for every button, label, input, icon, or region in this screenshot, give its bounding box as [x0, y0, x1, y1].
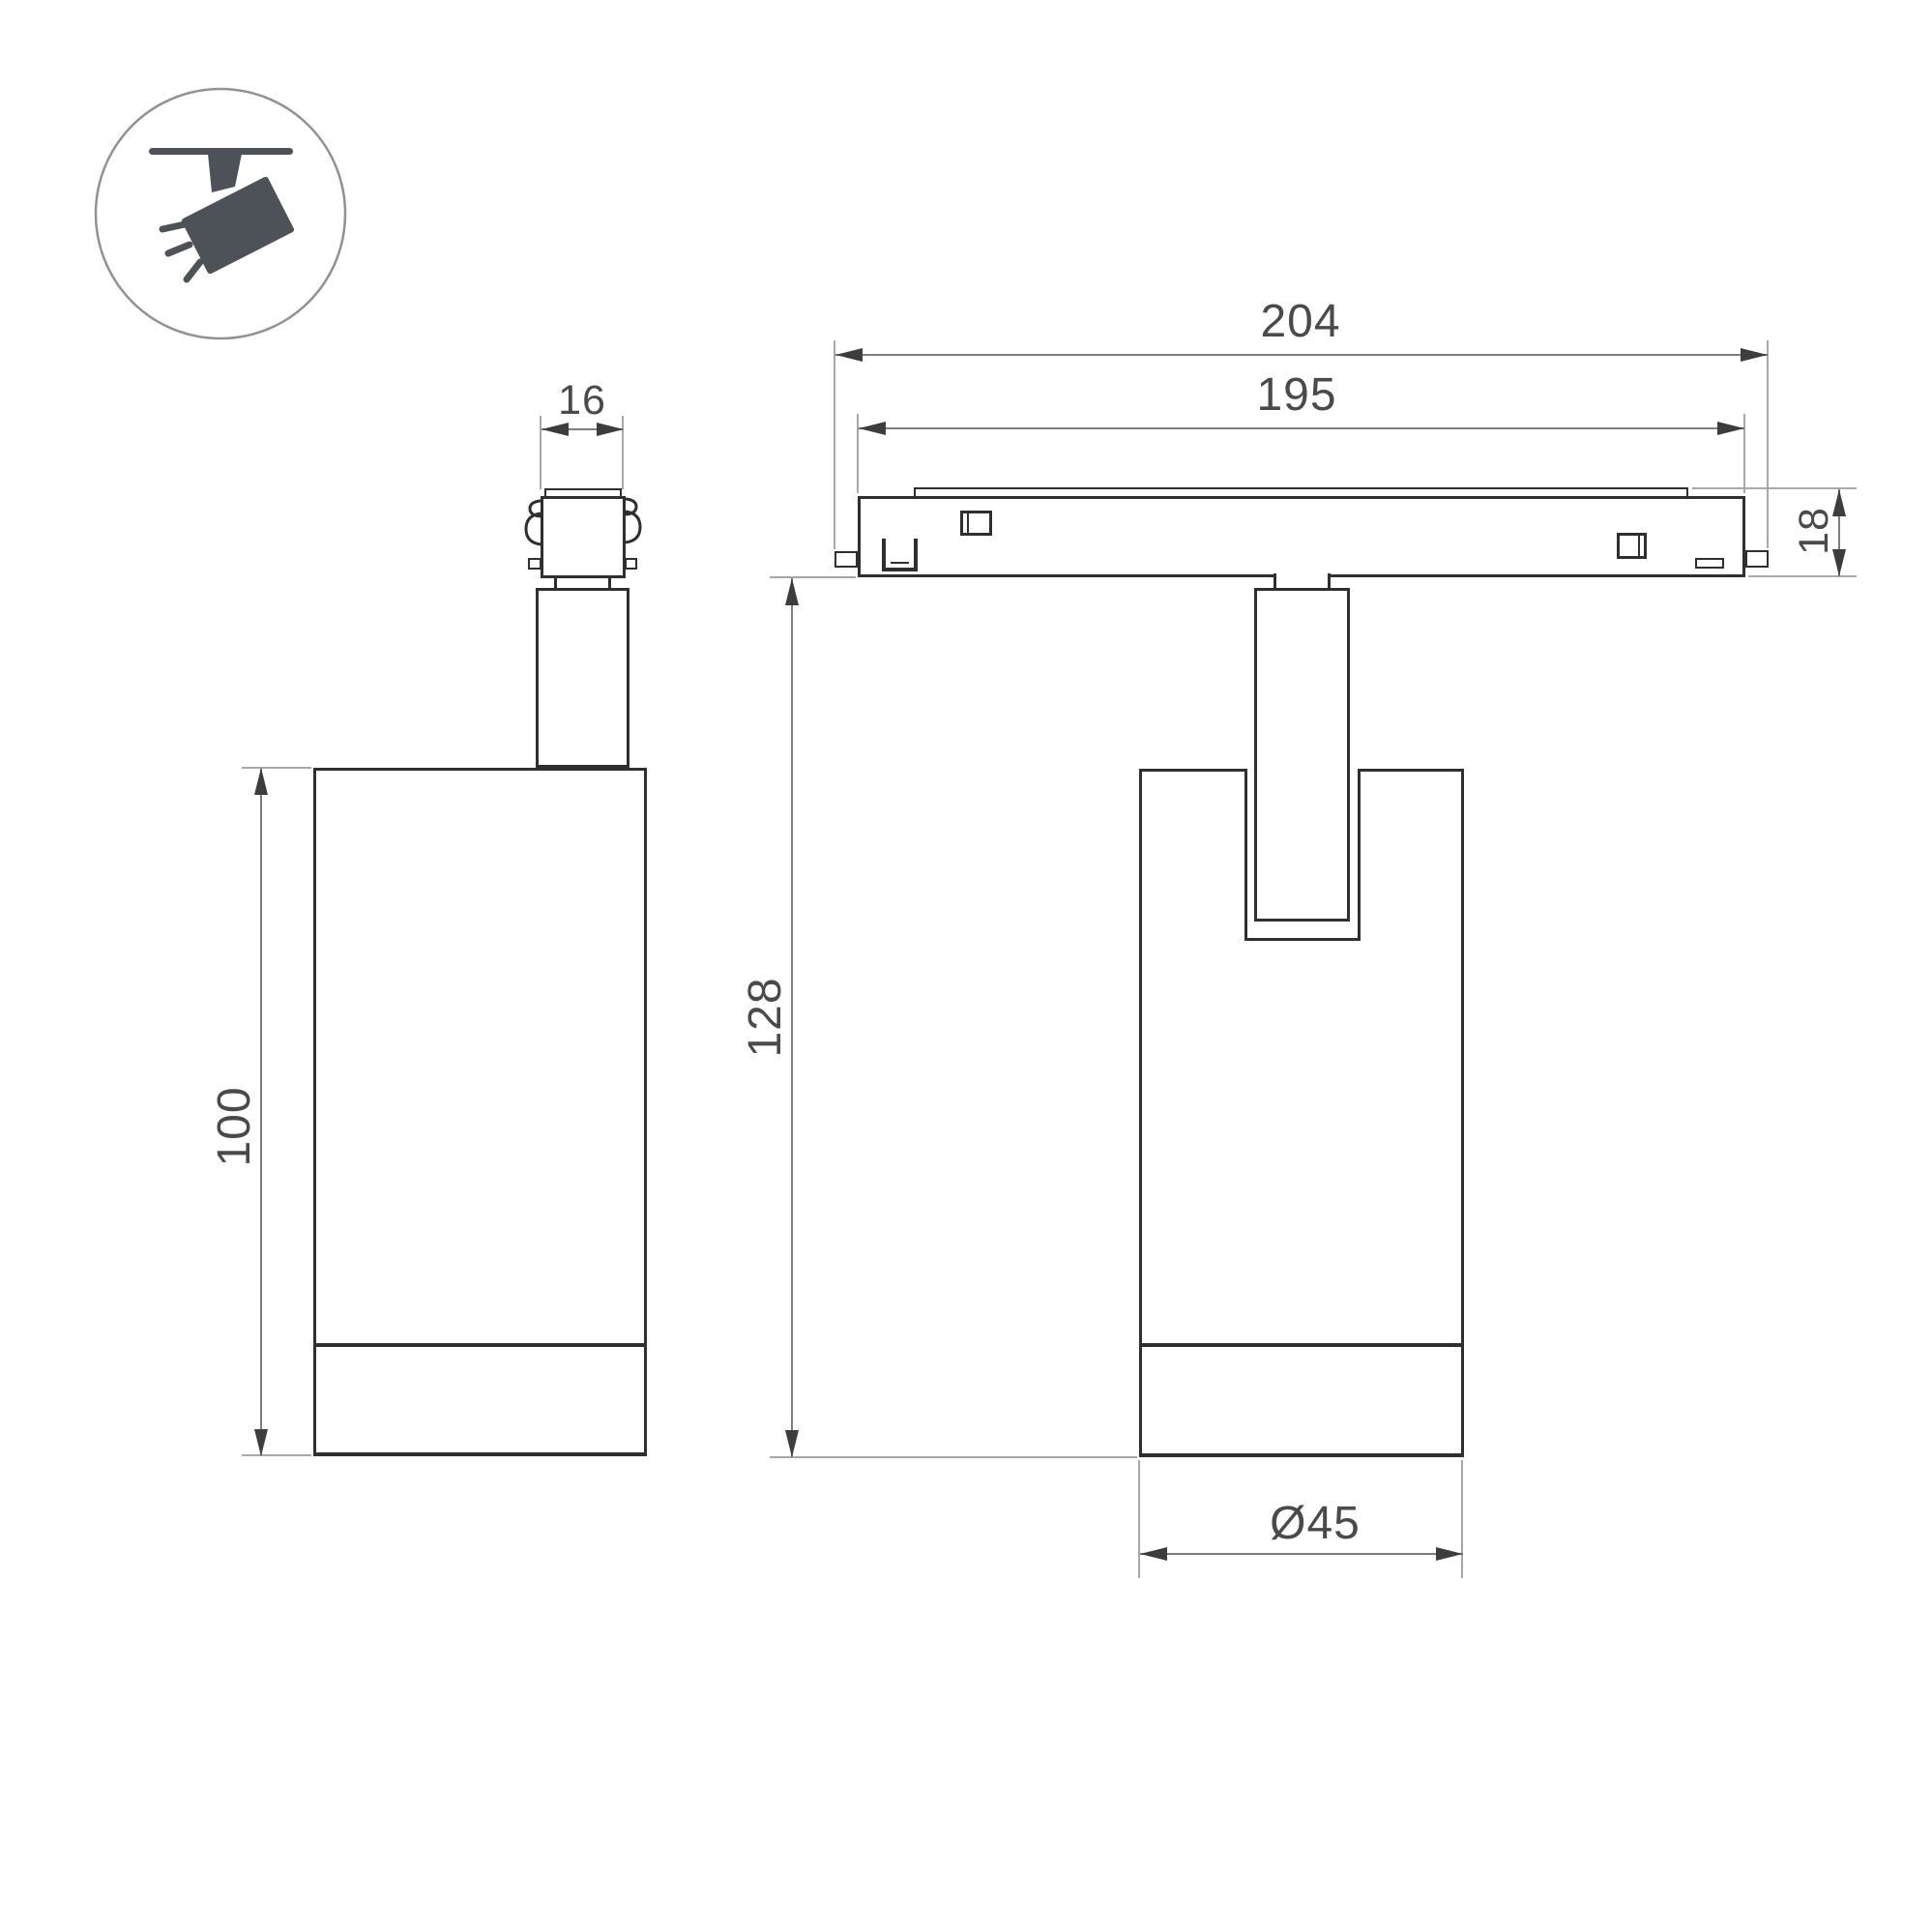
dimension-label: 16 — [534, 379, 630, 422]
arrowhead-up — [254, 768, 268, 795]
dimension-line — [859, 427, 1744, 429]
slot-wall-right — [1358, 769, 1361, 941]
track-clip-inner-line — [891, 562, 909, 564]
arrowhead-left — [1140, 1547, 1167, 1561]
neck — [554, 578, 611, 588]
arrowhead-down — [254, 1429, 268, 1456]
stem — [536, 588, 629, 768]
dimension-label: Ø45 — [1218, 1500, 1412, 1546]
track-slot-small — [1695, 558, 1724, 569]
arrowhead-right — [1717, 422, 1744, 435]
stem — [1254, 588, 1350, 922]
arrowhead-right — [597, 423, 624, 436]
track-clip — [882, 539, 918, 571]
track-hole-left-inner-line — [967, 513, 969, 533]
dimension-label: 128 — [744, 959, 786, 1075]
dimension-label: 195 — [1200, 371, 1393, 418]
track-end-tab-right — [1745, 550, 1769, 568]
track-end-tab-left — [834, 551, 858, 568]
track-spotlight-icon — [93, 86, 348, 341]
extension-line — [770, 1456, 1137, 1458]
slot-wall-left — [1244, 769, 1247, 941]
extension-line — [242, 767, 311, 769]
dimension-drawing: 16 100 — [0, 0, 1932, 1932]
track-body — [858, 496, 1745, 577]
extension-line — [242, 1454, 311, 1456]
arrowhead-left — [859, 422, 886, 435]
track-plate-end-left — [914, 487, 916, 497]
body-divider-line — [315, 1343, 645, 1347]
body-divider-line — [1142, 1343, 1461, 1347]
icon-ceiling-bar — [149, 148, 293, 155]
adapter-side-tab-left — [528, 558, 542, 570]
dimension-label: 18 — [1793, 483, 1835, 579]
arrowhead-up — [785, 578, 799, 605]
dimension-line — [1140, 1553, 1463, 1555]
track-plate-end-right — [1686, 487, 1688, 497]
track-hole-right — [1617, 533, 1647, 559]
arrowhead-left — [542, 423, 569, 436]
extension-line — [1767, 340, 1769, 548]
extension-line — [770, 576, 856, 578]
adapter-side-tab-right — [625, 558, 637, 570]
arrowhead-right — [1436, 1547, 1463, 1561]
extension-line — [834, 340, 835, 549]
dimension-label: 204 — [1204, 298, 1397, 344]
track-hole-left — [960, 511, 992, 536]
arrowhead-right — [1741, 348, 1768, 362]
arrowhead-left — [835, 348, 863, 362]
slot-bottom — [1244, 938, 1361, 941]
track-hole-right-inner-line — [1638, 536, 1640, 556]
dimension-line — [835, 354, 1768, 356]
neck — [1273, 573, 1331, 588]
arrowhead-down — [785, 1430, 799, 1457]
track-top-plate — [914, 487, 1688, 489]
dimension-label: 100 — [213, 1068, 255, 1185]
lamp-body — [313, 768, 647, 1456]
